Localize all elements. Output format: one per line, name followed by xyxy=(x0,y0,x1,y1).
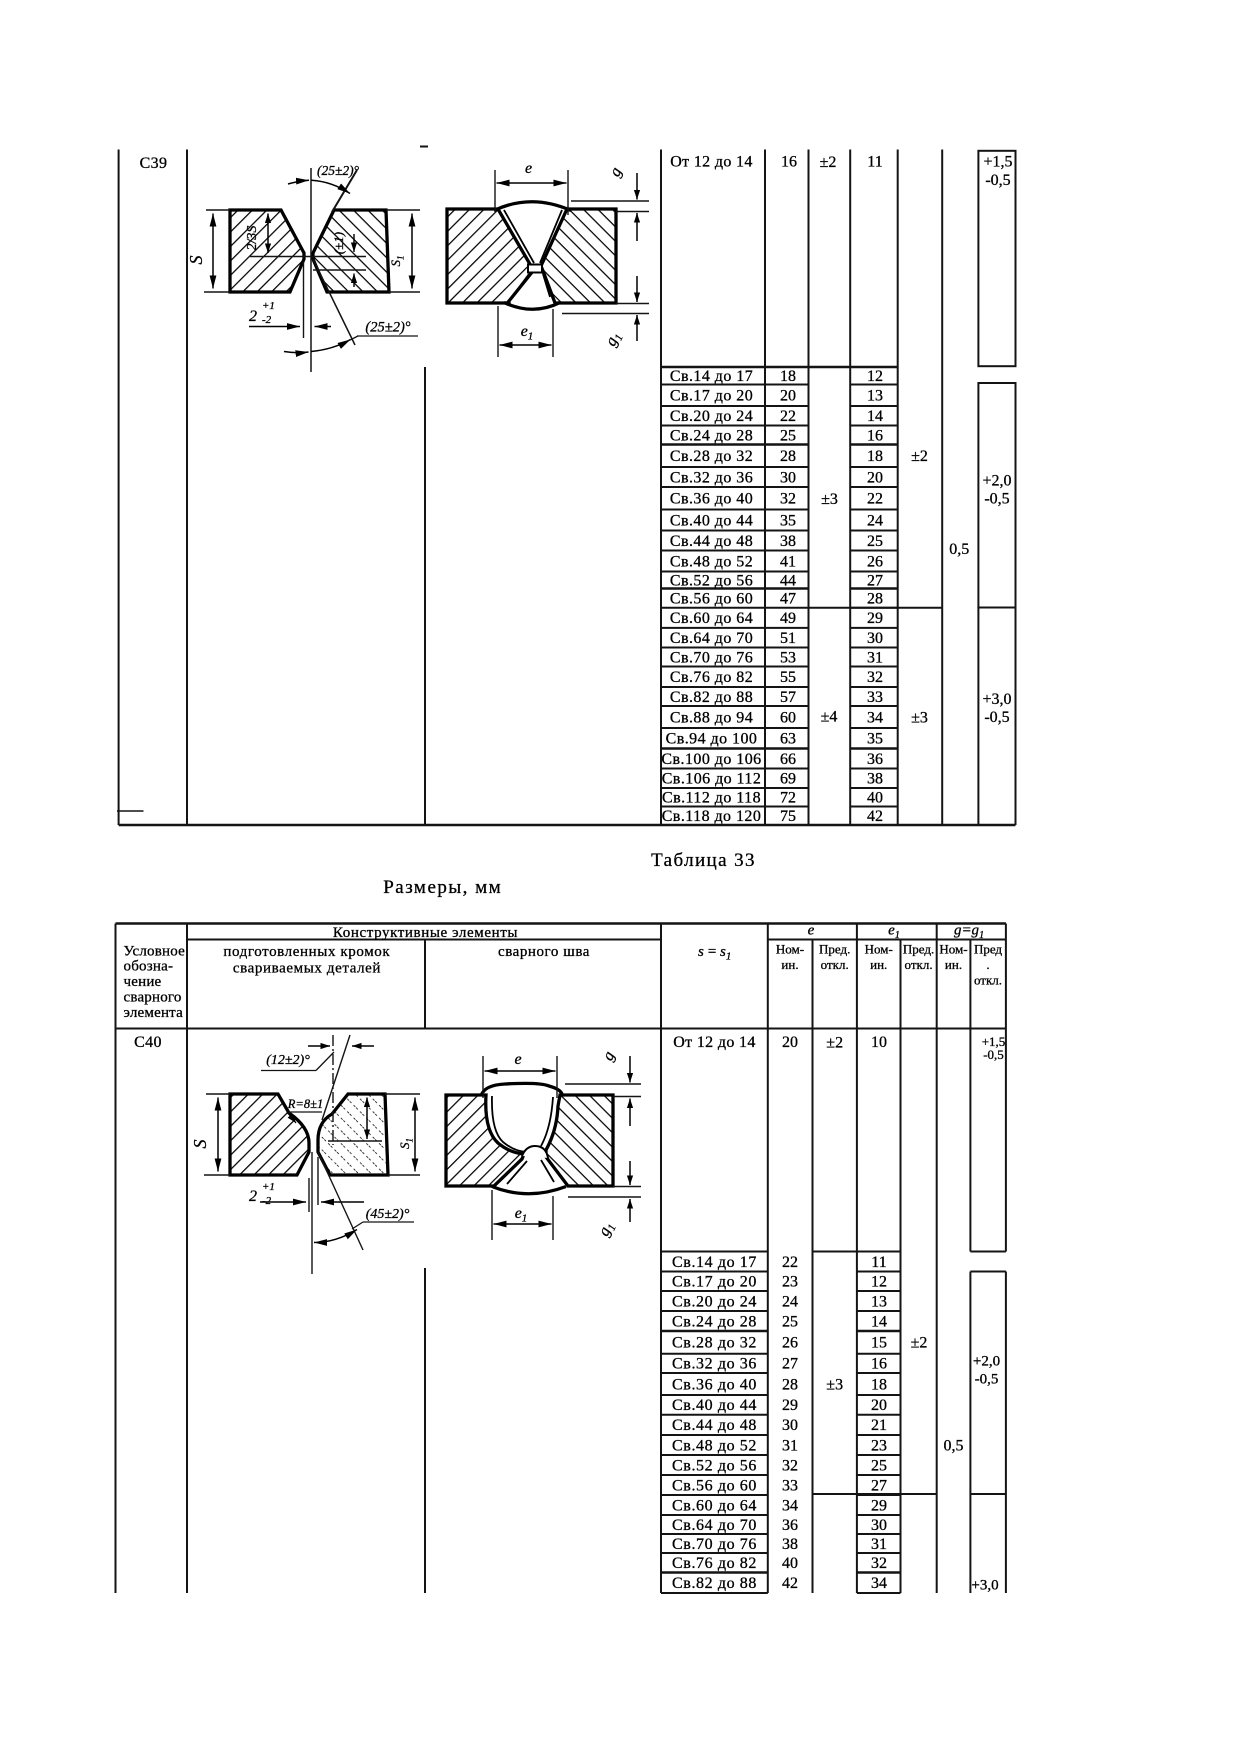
svg-text:13: 13 xyxy=(867,388,883,405)
svg-text:25: 25 xyxy=(780,427,796,444)
svg-text:24: 24 xyxy=(867,512,883,529)
svg-text:С39: С39 xyxy=(140,155,168,172)
svg-text:Св.52 до 56: Св.52 до 56 xyxy=(672,1457,757,1474)
svg-text:Св.20 до 24: Св.20 до 24 xyxy=(670,408,753,425)
svg-text:Св.76 до 82: Св.76 до 82 xyxy=(670,669,753,686)
svg-text:34: 34 xyxy=(782,1497,798,1514)
svg-text:20: 20 xyxy=(867,469,883,486)
svg-text:С40: С40 xyxy=(134,1034,162,1051)
svg-text:Св.40 до 44: Св.40 до 44 xyxy=(670,512,753,529)
svg-text:25: 25 xyxy=(871,1457,887,1474)
svg-text:Св.64 до 70: Св.64 до 70 xyxy=(672,1517,757,1534)
svg-text:-0,5: -0,5 xyxy=(984,709,1009,726)
svg-text:S: S xyxy=(186,256,206,265)
svg-text:Св.56 до 60: Св.56 до 60 xyxy=(672,1477,757,1494)
svg-text:±4: ±4 xyxy=(821,709,838,726)
svg-text:42: 42 xyxy=(782,1575,798,1592)
svg-text:33: 33 xyxy=(782,1477,798,1494)
svg-text:+1,5: +1,5 xyxy=(983,154,1012,171)
svg-text:12: 12 xyxy=(867,368,883,385)
svg-text:-0,5: -0,5 xyxy=(983,1047,1004,1062)
svg-text:Пред: Пред xyxy=(974,942,1002,957)
svg-text:63: 63 xyxy=(780,731,796,748)
svg-text:0,5: 0,5 xyxy=(949,541,969,558)
svg-text:14: 14 xyxy=(867,408,883,425)
svg-text:24: 24 xyxy=(782,1293,798,1310)
svg-text:Св.14 до 17: Св.14 до 17 xyxy=(672,1254,757,1271)
svg-text:Св.36 до 40: Св.36 до 40 xyxy=(670,491,753,508)
svg-text:31: 31 xyxy=(867,649,883,666)
svg-text:чение: чение xyxy=(124,974,162,990)
svg-text:Св.106 до 112: Св.106 до 112 xyxy=(662,771,762,788)
svg-text:сварного шва: сварного шва xyxy=(498,944,590,960)
svg-text:Условное: Условное xyxy=(124,943,186,959)
svg-text:34: 34 xyxy=(867,709,883,726)
svg-text:откл.: откл. xyxy=(905,957,933,972)
svg-text:Св.48 до 52: Св.48 до 52 xyxy=(670,553,753,570)
svg-text:Пред.: Пред. xyxy=(819,942,850,957)
svg-text:23: 23 xyxy=(871,1437,887,1454)
svg-text:11: 11 xyxy=(871,1254,886,1271)
svg-text:Св.60 до 64: Св.60 до 64 xyxy=(672,1497,757,1514)
svg-text:18: 18 xyxy=(871,1376,887,1393)
svg-text:22: 22 xyxy=(782,1254,798,1271)
svg-text:25: 25 xyxy=(782,1313,798,1330)
svg-text:38: 38 xyxy=(867,771,883,788)
svg-text:Св.24 до 28: Св.24 до 28 xyxy=(672,1313,757,1330)
svg-text:14: 14 xyxy=(871,1313,887,1330)
svg-text:Ном-: Ном- xyxy=(776,942,804,957)
svg-text:Св.14 до 17: Св.14 до 17 xyxy=(670,368,753,385)
svg-text:2: 2 xyxy=(249,1188,257,1205)
svg-text:Св.56 до 60: Св.56 до 60 xyxy=(670,590,753,607)
svg-text:49: 49 xyxy=(780,610,796,627)
svg-text:40: 40 xyxy=(782,1555,798,1572)
svg-text:откл.: откл. xyxy=(821,957,849,972)
svg-text:28: 28 xyxy=(780,448,796,465)
svg-text:21: 21 xyxy=(871,1417,887,1434)
svg-text:.: . xyxy=(986,957,989,972)
svg-text:Св.100 до 106: Св.100 до 106 xyxy=(661,751,761,768)
svg-text:обозна-: обозна- xyxy=(124,959,174,975)
svg-text:Св.82 до 88: Св.82 до 88 xyxy=(670,689,753,706)
svg-text:элемента: элемента xyxy=(124,1005,184,1021)
svg-text:Св.112 до 118: Св.112 до 118 xyxy=(662,790,761,807)
svg-text:33: 33 xyxy=(867,689,883,706)
svg-text:31: 31 xyxy=(782,1437,798,1454)
svg-text:e: e xyxy=(808,923,815,939)
svg-text:66: 66 xyxy=(780,751,796,768)
svg-text:Св.44 до 48: Св.44 до 48 xyxy=(670,533,753,550)
svg-text:S: S xyxy=(190,1140,210,1149)
svg-text:32: 32 xyxy=(867,669,883,686)
svg-text:ин.: ин. xyxy=(781,957,798,972)
svg-text:+3,0: +3,0 xyxy=(971,1578,998,1594)
svg-text:22: 22 xyxy=(867,491,883,508)
svg-text:+2,0: +2,0 xyxy=(973,1353,1000,1369)
svg-text:(25±2)°: (25±2)° xyxy=(317,163,360,178)
svg-text:16: 16 xyxy=(867,427,883,444)
svg-text:40: 40 xyxy=(867,790,883,807)
svg-text:Св.60 до 64: Св.60 до 64 xyxy=(670,610,753,627)
svg-text:38: 38 xyxy=(782,1536,798,1553)
svg-text:-0,5: -0,5 xyxy=(984,491,1009,508)
svg-text:28: 28 xyxy=(782,1376,798,1393)
svg-text:42: 42 xyxy=(867,808,883,825)
svg-text:-2: -2 xyxy=(262,1195,272,1207)
svg-text:сварного: сварного xyxy=(124,990,182,1006)
svg-text:От 12 до 14: От 12 до 14 xyxy=(670,154,753,171)
svg-text:±3: ±3 xyxy=(911,710,928,727)
svg-text:60: 60 xyxy=(780,709,796,726)
svg-text:35: 35 xyxy=(867,731,883,748)
svg-text:16: 16 xyxy=(781,154,797,171)
svg-text:Св.48 до 52: Св.48 до 52 xyxy=(672,1437,757,1454)
svg-text:Св.64 до 70: Св.64 до 70 xyxy=(670,630,753,647)
svg-text:+1: +1 xyxy=(262,1181,275,1193)
svg-text:15: 15 xyxy=(871,1335,887,1352)
svg-text:29: 29 xyxy=(867,610,883,627)
svg-text:20: 20 xyxy=(871,1397,887,1414)
svg-text:e: e xyxy=(514,1051,521,1068)
svg-text:Св.24 до 28: Св.24 до 28 xyxy=(670,427,753,444)
svg-text:Св.52 до 56: Св.52 до 56 xyxy=(670,572,753,589)
svg-text:27: 27 xyxy=(867,572,883,589)
svg-text:свариваемых деталей: свариваемых деталей xyxy=(233,961,381,977)
svg-text:e: e xyxy=(525,160,532,177)
svg-text:32: 32 xyxy=(780,491,796,508)
svg-text:±2: ±2 xyxy=(911,448,928,465)
svg-text:57: 57 xyxy=(780,689,796,706)
svg-text:(45±2)°: (45±2)° xyxy=(366,1207,410,1222)
svg-text:±3: ±3 xyxy=(821,491,838,508)
svg-text:20: 20 xyxy=(780,388,796,405)
svg-text:75: 75 xyxy=(780,808,796,825)
svg-text:35: 35 xyxy=(780,512,796,529)
svg-text:+2,0: +2,0 xyxy=(982,473,1011,490)
svg-text:10: 10 xyxy=(871,1034,887,1051)
svg-text:(12±2)°: (12±2)° xyxy=(266,1053,310,1068)
svg-text:55: 55 xyxy=(780,669,796,686)
svg-text:Св.17 до 20: Св.17 до 20 xyxy=(670,388,753,405)
svg-text:30: 30 xyxy=(782,1417,798,1434)
svg-text:47: 47 xyxy=(780,590,796,607)
svg-text:41: 41 xyxy=(780,553,796,570)
svg-text:16: 16 xyxy=(871,1356,887,1373)
svg-text:-0,5: -0,5 xyxy=(985,172,1010,189)
svg-text:Св.118 до 120: Св.118 до 120 xyxy=(662,808,762,825)
svg-text:Св.28 до 32: Св.28 до 32 xyxy=(670,448,753,465)
svg-text:Св.40 до 44: Св.40 до 44 xyxy=(672,1397,757,1414)
svg-text:Св.70 до 76: Св.70 до 76 xyxy=(672,1536,757,1553)
svg-text:28: 28 xyxy=(867,590,883,607)
svg-text:18: 18 xyxy=(780,368,796,385)
svg-text:Св.17 до 20: Св.17 до 20 xyxy=(672,1274,757,1291)
svg-text:34: 34 xyxy=(871,1575,887,1592)
svg-text:36: 36 xyxy=(782,1517,798,1534)
svg-text:26: 26 xyxy=(782,1335,798,1352)
svg-text:откл.: откл. xyxy=(974,973,1002,988)
svg-text:ин.: ин. xyxy=(945,957,962,972)
svg-text:36: 36 xyxy=(867,751,883,768)
svg-text:32: 32 xyxy=(782,1457,798,1474)
svg-text:подготовленных кромок: подготовленных кромок xyxy=(223,944,390,960)
svg-text:±2: ±2 xyxy=(820,154,837,171)
svg-text:27: 27 xyxy=(782,1356,798,1373)
svg-text:+1: +1 xyxy=(262,300,275,312)
svg-text:Св.44 до 48: Св.44 до 48 xyxy=(672,1417,757,1434)
svg-text:-2: -2 xyxy=(262,314,272,326)
svg-text:27: 27 xyxy=(871,1477,887,1494)
svg-text:Св.88 до 94: Св.88 до 94 xyxy=(670,709,753,726)
svg-text:+3,0: +3,0 xyxy=(982,691,1011,708)
svg-text:±3: ±3 xyxy=(826,1377,843,1394)
svg-text:Св.28 до 32: Св.28 до 32 xyxy=(672,1335,757,1352)
svg-text:R=8±1: R=8±1 xyxy=(287,1097,323,1111)
svg-text:Св.82 до 88: Св.82 до 88 xyxy=(672,1575,757,1592)
svg-text:30: 30 xyxy=(867,630,883,647)
svg-text:0,5: 0,5 xyxy=(944,1437,964,1454)
svg-text:31: 31 xyxy=(871,1536,887,1553)
svg-text:Конструктивные элементы: Конструктивные элементы xyxy=(333,925,518,941)
svg-text:53: 53 xyxy=(780,649,796,666)
svg-text:(±1): (±1) xyxy=(331,232,346,254)
svg-text:20: 20 xyxy=(782,1034,798,1051)
svg-text:23: 23 xyxy=(782,1274,798,1291)
svg-text:От 12 до 14: От 12 до 14 xyxy=(673,1034,756,1051)
svg-text:±2: ±2 xyxy=(911,1335,928,1352)
svg-text:51: 51 xyxy=(780,630,796,647)
svg-text:Пред.: Пред. xyxy=(903,942,934,957)
svg-text:22: 22 xyxy=(780,408,796,425)
svg-text:(25±2)°: (25±2)° xyxy=(365,320,410,336)
svg-text:25: 25 xyxy=(867,533,883,550)
svg-text:29: 29 xyxy=(782,1397,798,1414)
svg-text:Св.94 до 100: Св.94 до 100 xyxy=(666,731,758,748)
svg-text:Св.70 до 76: Св.70 до 76 xyxy=(670,649,753,666)
svg-text:44: 44 xyxy=(780,572,796,589)
svg-text:Св.20 до 24: Св.20 до 24 xyxy=(672,1293,757,1310)
svg-text:30: 30 xyxy=(780,469,796,486)
svg-text:26: 26 xyxy=(867,553,883,570)
svg-text:Таблица 33: Таблица 33 xyxy=(651,850,756,871)
svg-text:12: 12 xyxy=(871,1274,887,1291)
svg-text:Размеры, мм: Размеры, мм xyxy=(383,877,502,898)
svg-text:Св.76 до 82: Св.76 до 82 xyxy=(672,1555,757,1572)
svg-text:32: 32 xyxy=(871,1555,887,1572)
svg-text:Св.32 до 36: Св.32 до 36 xyxy=(670,469,753,486)
svg-text:11: 11 xyxy=(867,154,882,171)
svg-text:Св.36 до 40: Св.36 до 40 xyxy=(672,1376,757,1393)
svg-text:30: 30 xyxy=(871,1517,887,1534)
svg-text:72: 72 xyxy=(780,790,796,807)
svg-text:ин.: ин. xyxy=(870,957,887,972)
svg-text:29: 29 xyxy=(871,1497,887,1514)
svg-text:18: 18 xyxy=(867,448,883,465)
svg-text:2/3S: 2/3S xyxy=(245,226,260,251)
svg-text:Ном-: Ном- xyxy=(939,942,967,957)
svg-text:Ном-: Ном- xyxy=(865,942,893,957)
svg-text:69: 69 xyxy=(780,771,796,788)
svg-text:Св.32 до 36: Св.32 до 36 xyxy=(672,1356,757,1373)
svg-text:13: 13 xyxy=(871,1293,887,1310)
svg-text:-0,5: -0,5 xyxy=(975,1371,999,1387)
svg-text:38: 38 xyxy=(780,533,796,550)
svg-text:±2: ±2 xyxy=(826,1034,843,1051)
svg-text:2: 2 xyxy=(249,308,257,325)
